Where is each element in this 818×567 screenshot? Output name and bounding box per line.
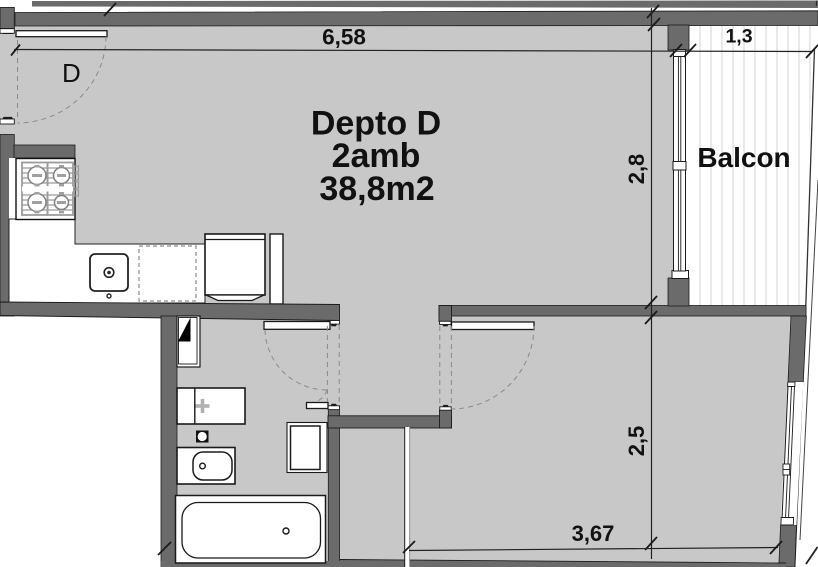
- svg-text:2,5: 2,5: [624, 426, 649, 457]
- svg-text:Balcon: Balcon: [697, 142, 790, 173]
- svg-text:3,67: 3,67: [572, 521, 615, 546]
- svg-text:1,3: 1,3: [725, 26, 752, 48]
- svg-text:2,8: 2,8: [624, 154, 649, 185]
- svg-text:6,58: 6,58: [322, 25, 366, 50]
- svg-text:38,8m2: 38,8m2: [319, 170, 434, 208]
- svg-text:D: D: [62, 58, 81, 88]
